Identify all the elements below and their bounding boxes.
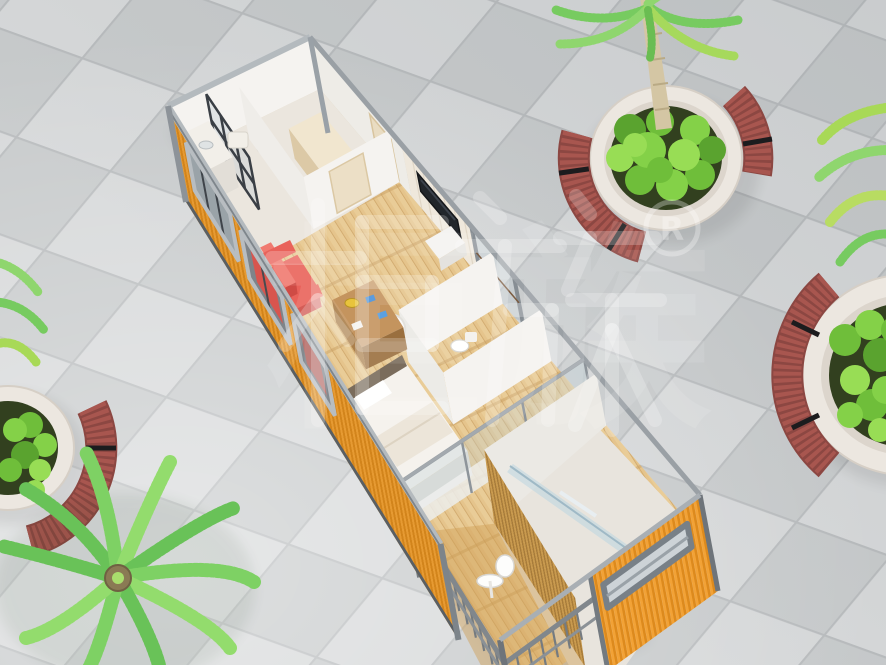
render-canvas: 柜族 R bbox=[0, 0, 886, 665]
registered-letter: R bbox=[660, 210, 685, 248]
planter-right bbox=[787, 275, 886, 487]
palm-crown bbox=[112, 572, 124, 584]
balcony-chair bbox=[496, 555, 514, 577]
watermark: 柜族 R bbox=[266, 196, 722, 460]
scene-svg: 柜族 R bbox=[0, 0, 886, 665]
